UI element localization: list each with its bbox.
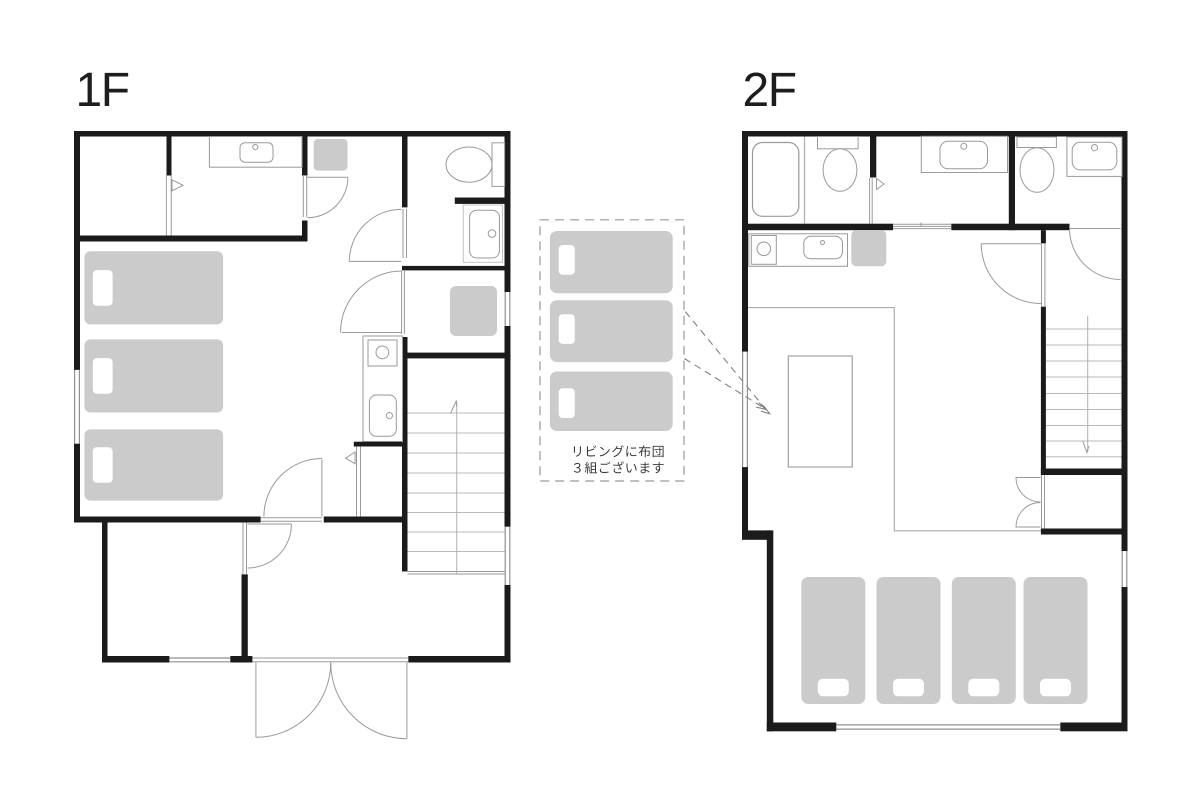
svg-text:1F: 1F bbox=[76, 64, 129, 117]
svg-text:2F: 2F bbox=[743, 64, 796, 117]
